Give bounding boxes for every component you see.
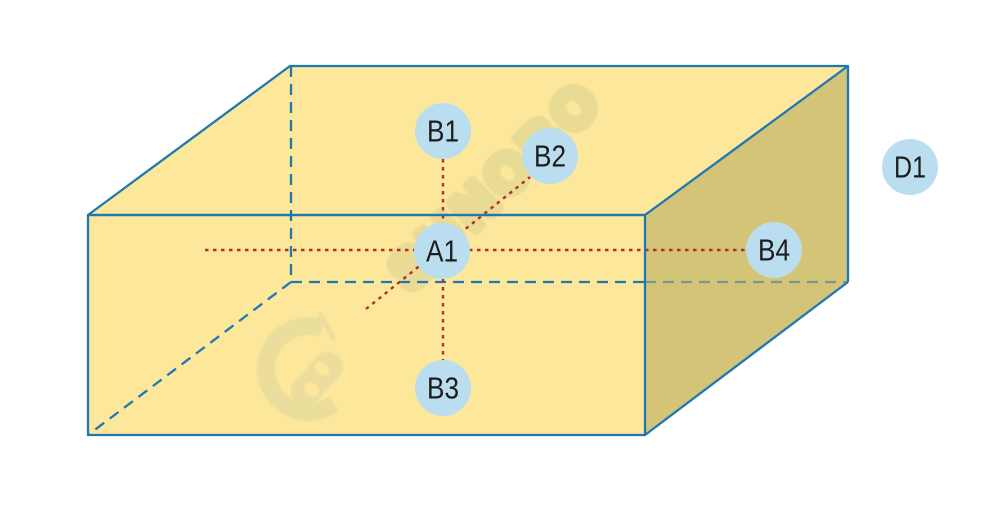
svg-text:A1: A1 [426,235,458,269]
svg-text:B1: B1 [427,115,459,149]
svg-text:B2: B2 [534,140,566,174]
svg-text:D1: D1 [894,151,926,185]
svg-text:B4: B4 [758,234,790,268]
svg-text:B3: B3 [427,372,459,406]
